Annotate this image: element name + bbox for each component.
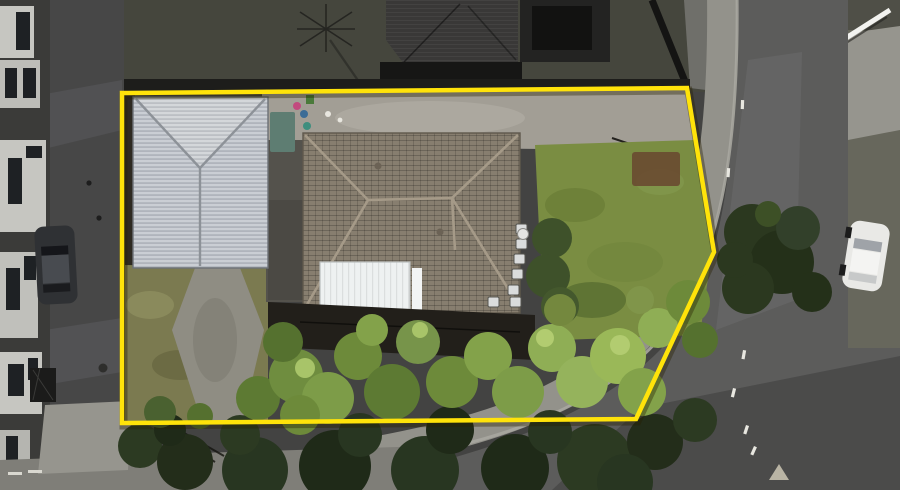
tree-canopy-blob	[682, 322, 718, 358]
yard-item-blue	[300, 110, 308, 118]
manhole-cover	[99, 364, 108, 373]
tree-canopy-blob	[295, 358, 315, 378]
road-dash	[726, 168, 730, 177]
tree-canopy-blob	[280, 395, 320, 435]
tree-shadow-on-lawn	[532, 218, 572, 258]
pedestrian	[96, 215, 101, 220]
tree-canopy-shadow	[673, 398, 717, 442]
street-tree-blob	[755, 201, 781, 227]
garden-shed	[270, 112, 295, 152]
tree-canopy-blob	[412, 322, 428, 338]
path-worn-center	[193, 298, 237, 382]
pedestrian	[86, 180, 91, 185]
tree-canopy-blob	[536, 329, 554, 347]
yard-item-teal	[303, 122, 311, 130]
lawn-patch	[126, 291, 174, 319]
neighbour-yard-top	[120, 0, 736, 92]
roof-vent	[375, 163, 382, 170]
street-tree-blob	[776, 206, 820, 250]
ac-unit	[512, 269, 523, 279]
aerial-photo-canvas	[0, 0, 900, 490]
tree-canopy-blob	[492, 366, 544, 418]
ac-unit	[514, 254, 525, 264]
paint-smudge	[338, 118, 343, 123]
ac-unit	[510, 297, 521, 307]
neighbour-carport-shadow	[532, 6, 592, 50]
driveway-apron-left	[38, 401, 132, 474]
street-tree-blob	[717, 242, 753, 278]
tree-canopy-blob	[364, 364, 420, 420]
lawn-mottle	[587, 242, 663, 282]
corner-fence	[30, 368, 56, 402]
garden-bed	[632, 152, 680, 186]
tree-canopy-shadow	[426, 406, 474, 454]
street-tree-blob	[792, 272, 832, 312]
ac-unit	[508, 285, 519, 295]
lawn-mottle	[545, 188, 605, 222]
ac-unit	[516, 239, 527, 249]
parked-car-dark	[34, 225, 78, 305]
metal-roof-house	[133, 97, 268, 268]
roof-vent	[437, 229, 444, 236]
road-dash	[741, 100, 745, 109]
aerial-photo	[0, 0, 900, 490]
tree-canopy-blob	[263, 322, 303, 362]
kerb-dash	[8, 472, 22, 475]
tree-canopy-blob	[544, 294, 576, 326]
yard-item-pink	[293, 102, 301, 110]
tree-canopy-blob	[610, 335, 630, 355]
satellite-dish	[518, 229, 529, 240]
kerb-dash	[28, 470, 42, 473]
paint-smudge	[325, 111, 331, 117]
driveway-apron-right	[843, 26, 900, 140]
tree-canopy-blob	[626, 286, 654, 314]
tree-canopy-shadow	[528, 410, 572, 454]
driveway-worn-patch	[335, 101, 525, 135]
ac-unit	[488, 297, 499, 307]
neighbour-roof	[380, 0, 522, 84]
tree-canopy-blob	[356, 314, 388, 346]
